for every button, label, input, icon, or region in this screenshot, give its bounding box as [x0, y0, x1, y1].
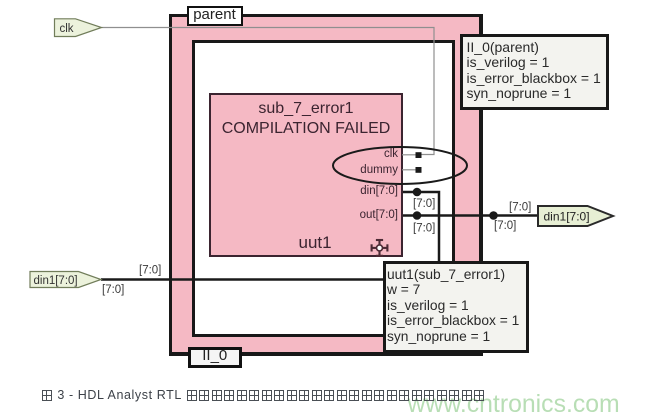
svg-text:[7:0]: [7:0] — [509, 202, 531, 214]
svg-text:[7:0]: [7:0] — [139, 265, 161, 277]
svg-text:[7:0]: [7:0] — [413, 198, 435, 210]
svg-text:[7:0]: [7:0] — [494, 220, 516, 232]
svg-text:din1[7:0]: din1[7:0] — [34, 275, 78, 287]
svg-text:din1[7:0]: din1[7:0] — [544, 209, 590, 223]
svg-text:[7:0]: [7:0] — [413, 223, 435, 235]
svg-text:[7:0]: [7:0] — [102, 284, 124, 296]
svg-text:clk: clk — [60, 23, 74, 35]
